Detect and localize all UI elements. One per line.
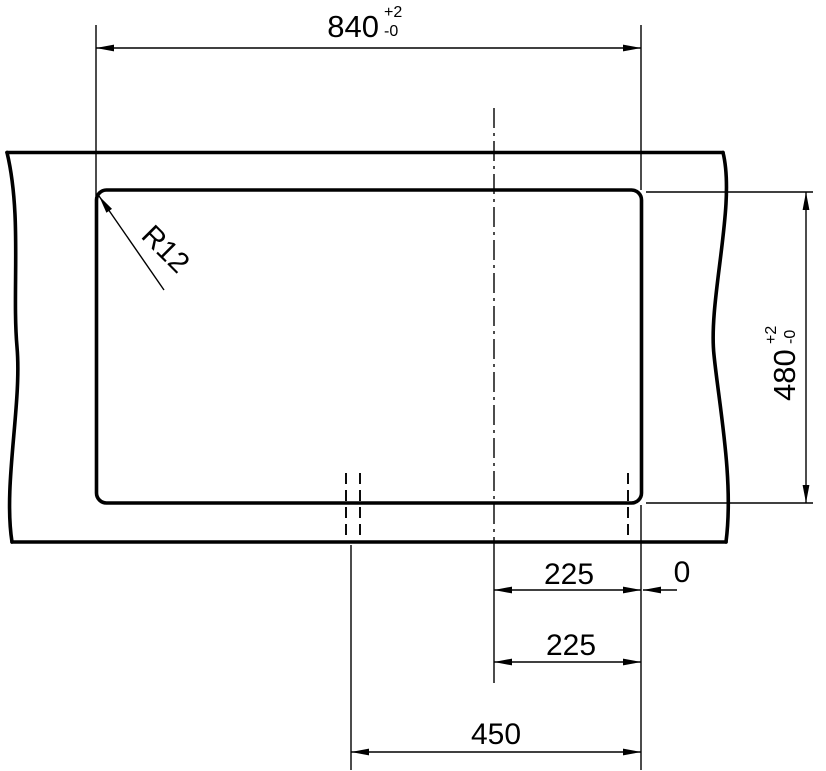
radius-label: R12	[135, 219, 195, 279]
offset-upper-value: 225	[544, 558, 594, 591]
radius-callout-r12: R12	[99, 196, 195, 290]
break-line-left	[7, 153, 18, 543]
arrowhead-top	[803, 192, 810, 210]
span-value: 450	[471, 718, 521, 751]
dimension-width-840: 840 +2 -0	[96, 4, 641, 196]
dimension-height-480: 480 +2 -0	[646, 192, 813, 503]
width-dim-tol-minus: -0	[384, 23, 398, 40]
arrowhead-right	[623, 587, 641, 594]
dimension-offset-upper-225: 225	[494, 558, 641, 593]
height-dim-tol-minus: -0	[782, 330, 799, 344]
dimension-offset-lower-225: 225	[494, 629, 641, 665]
dimension-span-450: 450	[351, 718, 641, 755]
arrowhead-left	[351, 749, 369, 756]
height-dim-value: 480	[767, 349, 802, 401]
arrowhead-left	[494, 587, 512, 594]
arrowhead-right	[623, 749, 641, 756]
datum-value: 0	[674, 556, 691, 589]
countertop-outline	[7, 153, 728, 543]
arrowhead-right	[623, 659, 641, 666]
offset-lower-value: 225	[546, 629, 596, 662]
break-line-right	[713, 153, 728, 543]
cutout-dimension-drawing: 840 +2 -0 480 +2 -0 R12	[0, 0, 826, 771]
cutout-outline	[97, 190, 642, 503]
technical-drawing-page: 840 +2 -0 480 +2 -0 R12	[0, 0, 826, 771]
arrowhead-left	[494, 659, 512, 666]
hidden-edges	[346, 473, 628, 542]
arrowhead-left	[96, 45, 114, 52]
width-dim-value: 840	[327, 9, 379, 44]
datum-arrowhead	[643, 587, 661, 594]
arrowhead-bottom	[803, 485, 810, 503]
arrowhead-right	[623, 45, 641, 52]
dimension-datum-0: 0	[643, 556, 690, 593]
height-dim-tol-plus: +2	[763, 326, 780, 344]
leader-arrowhead	[99, 196, 112, 213]
width-dim-tol-plus: +2	[384, 4, 402, 21]
